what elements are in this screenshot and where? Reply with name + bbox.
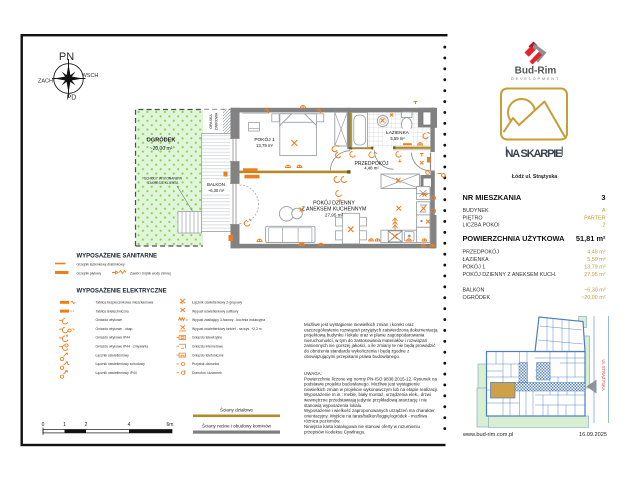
svg-text:5,59 m²: 5,59 m² [390, 136, 405, 141]
svg-text:orientacyjny. Wyjście na taras: orientacyjny. Wyjście na taras/balkon/lo… [304, 413, 427, 418]
svg-text:Domofon i dzwonek: Domofon i dzwonek [192, 371, 222, 375]
svg-text:POKÓJ DZIENNY: POKÓJ DZIENNY [313, 199, 355, 206]
svg-text:LICZBA POKOI: LICZBA POKOI [463, 223, 500, 229]
svg-text:Wypust zasilający 3-fazowy - k: Wypust zasilający 3-fazowy - kuchnia ind… [192, 318, 265, 322]
svg-text:UWAGA:: UWAGA: [304, 371, 322, 376]
svg-text:Gniazdo wtykowe: Gniazdo wtykowe [96, 318, 123, 322]
svg-text:przepisów Kodeksu Cywilnego.: przepisów Kodeksu Cywilnego. [304, 429, 365, 434]
svg-text:16.09.2025: 16.09.2025 [579, 432, 607, 438]
svg-text:Zawór i trójnik wody zimnej: Zawór i trójnik wody zimnej [130, 272, 171, 276]
svg-text:PN: PN [59, 51, 74, 63]
svg-text:Bud-Rim: Bud-Rim [515, 66, 557, 77]
svg-text:Tablica teletechniczna: Tablica teletechniczna [96, 309, 129, 313]
svg-text:Łódź ul. Strążyska: Łódź ul. Strążyska [512, 174, 557, 180]
svg-text:Tablica bezpiecznikowa mieszka: Tablica bezpiecznikowa mieszkaniowa [96, 301, 154, 305]
svg-text:A: A [602, 208, 606, 214]
svg-text:0: 0 [42, 422, 45, 428]
svg-text:Gniazdo wtykowe IP44: Gniazdo wtykowe IP44 [96, 336, 131, 340]
svg-text:UL STRĄŻYSKA: UL STRĄŻYSKA [601, 359, 606, 390]
svg-text:Ściany działowe: Ściany działowe [220, 406, 253, 413]
svg-text:PARTER: PARTER [584, 216, 605, 222]
svg-text:PD: PD [67, 95, 77, 102]
svg-text:NA SKARPIE: NA SKARPIE [506, 148, 563, 160]
svg-text:POKÓJ DZIENNY Z ANEKSEM KUCH.: POKÓJ DZIENNY Z ANEKSEM KUCH. [463, 271, 557, 278]
svg-text:6m: 6m [167, 422, 174, 428]
svg-text:~20,00 m²: ~20,00 m² [150, 146, 173, 152]
svg-text:POKÓJ 1: POKÓJ 1 [463, 264, 486, 271]
svg-text:OPASKA: OPASKA [209, 114, 213, 129]
svg-text:obowiązującymi przepisami praw: obowiązującymi przepisami prawa budowlan… [304, 354, 400, 359]
svg-text:SCHODY WYKONANE W: SCHODY WYKONANE W [144, 177, 183, 181]
svg-text:Wyposażenie i wielkość zapropo: Wyposażenie i wielkość zaproponowanych u… [304, 408, 435, 413]
svg-text:4,48 m²: 4,48 m² [587, 250, 605, 256]
svg-text:Powierzchnie liczone wg normy: Powierzchnie liczone wg normy PN-ISO 983… [304, 376, 437, 381]
svg-text:OGRÓDEK: OGRÓDEK [463, 294, 491, 301]
svg-text:PRZEDPOKÓJ: PRZEDPOKÓJ [463, 249, 500, 256]
svg-text:wewnętrzne przedstawiają jedyn: wewnętrzne przedstawiają jedynie przykła… [304, 398, 428, 403]
svg-text:Wyposażenie m.in.: meble, biał: Wyposażenie m.in.: meble, biały montaż, … [304, 392, 431, 397]
svg-text:Łącznik oświetleniowy: Łącznik oświetleniowy [96, 353, 130, 357]
svg-text:~6,30 m²: ~6,30 m² [208, 188, 225, 193]
svg-text:BUDYNEK: BUDYNEK [463, 208, 489, 214]
svg-text:Ściany nośne i obudowy kominów: Ściany nośne i obudowy kominów [202, 422, 272, 429]
svg-text:Gniazdo telewizyjne: Gniazdo telewizyjne [192, 336, 222, 340]
svg-text:27,95 m²: 27,95 m² [325, 212, 344, 217]
svg-text:projektową budynku i lokalu or: projektową budynku i lokalu oraz w plani… [304, 333, 425, 338]
svg-text:Wypust oświetleniowy sufitowy: Wypust oświetleniowy sufitowy [192, 309, 239, 313]
svg-text:Niniejsza karta katalogowa nie: Niniejsza karta katalogowa nie stanowi o… [304, 424, 420, 429]
svg-text:uszczegółowienie rozwiązań prz: uszczegółowienie rozwiązań przyjętych za… [304, 327, 438, 332]
svg-text:WYPOSAŻENIE SANITARNE: WYPOSAŻENIE SANITARNE [77, 253, 158, 260]
svg-text:~20,00 m²: ~20,00 m² [581, 295, 606, 301]
svg-text:ŁAZIENKA: ŁAZIENKA [386, 130, 410, 135]
svg-text:BALKON: BALKON [463, 288, 485, 294]
svg-text:Gniazdo wtykowe IP44 - zmywark: Gniazdo wtykowe IP44 - zmywarka [96, 345, 149, 349]
svg-text:WYPOSAŻENIE ELEKTRYCZNE: WYPOSAŻENIE ELEKTRYCZNE [77, 288, 167, 295]
svg-text:Gniazdo wtykowe - okap: Gniazdo wtykowe - okap [96, 327, 133, 331]
svg-text:BALKON: BALKON [207, 182, 225, 187]
svg-text:ZAKRESIE KLIENTA: ZAKRESIE KLIENTA [148, 181, 180, 185]
svg-text:4: 4 [128, 422, 131, 428]
svg-text:Gniazdo internetowe: Gniazdo internetowe [192, 345, 223, 349]
svg-text:WSCH: WSCH [82, 73, 99, 79]
svg-text:podstawie projektu budowlanego: podstawie projektu budowlanego. Możliwe … [304, 382, 420, 387]
svg-text:27,95 m²: 27,95 m² [584, 272, 605, 278]
svg-text:Łącznik oświetleniowy 2-grupow: Łącznik oświetleniowy 2-grupowy [192, 301, 242, 305]
svg-text:2: 2 [85, 422, 88, 428]
svg-text:Przycisk dzwonka: Przycisk dzwonka [192, 362, 219, 366]
svg-text:ZACH: ZACH [38, 79, 53, 85]
svg-text:Grzejnik łazienkowy drabinkowy: Grzejnik łazienkowy drabinkowy [77, 263, 125, 267]
svg-text:OGRÓDEK: OGRÓDEK [147, 136, 176, 144]
svg-text:~6,30 m²: ~6,30 m² [584, 288, 606, 294]
svg-text:Łącznik oświetleniowy schodowy: Łącznik oświetleniowy schodowy [96, 362, 146, 366]
svg-text:Możliwe jest wystąpienie niewi: Możliwe jest wystąpienie niewielkich zmi… [304, 322, 414, 327]
svg-text:5,59 m²: 5,59 m² [587, 257, 605, 263]
svg-text:POKÓJ 1: POKÓJ 1 [254, 136, 275, 143]
svg-text:3: 3 [601, 193, 605, 202]
svg-text:Gniazdo telefoniczne: Gniazdo telefoniczne [192, 353, 224, 357]
svg-text:13,79 m²: 13,79 m² [584, 265, 605, 271]
svg-text:zamiennych nie gorszej jakości: zamiennych nie gorszej jakości, o ile zm… [304, 343, 436, 348]
svg-text:4,48 m²: 4,48 m² [364, 166, 379, 171]
svg-text:POWIERZCHNIA UŻYTKOWA: POWIERZCHNIA UŻYTKOWA [463, 234, 566, 243]
svg-text:ŁAZIENKA: ŁAZIENKA [463, 257, 489, 263]
svg-text:niewielkich zmian w projekcie: niewielkich zmian w projekcie wykonawczy… [304, 387, 438, 392]
svg-text:ŻWIROWA: ŻWIROWA [214, 112, 219, 130]
svg-text:Grzejnik płytowy: Grzejnik płytowy [77, 272, 102, 276]
svg-text:Łącznik oświetleniowy IP44: Łącznik oświetleniowy IP44 [96, 371, 137, 375]
svg-text:stanowią wyposażenia lokalu.: stanowią wyposażenia lokalu. [304, 403, 362, 408]
svg-text:2: 2 [603, 223, 606, 229]
svg-text:13,79 m²: 13,79 m² [256, 143, 274, 148]
svg-text:1: 1 [63, 422, 66, 428]
svg-text:51,81 m²: 51,81 m² [576, 234, 606, 243]
svg-text:różnica poziomów.: różnica poziomów. [304, 419, 341, 424]
svg-text:DEVELOPMENT: DEVELOPMENT [511, 76, 560, 81]
svg-text:NR MIESZKANIA: NR MIESZKANIA [463, 193, 522, 202]
svg-text:PIĘTRO: PIĘTRO [463, 216, 483, 222]
svg-text:nieruchomości, w tym do zastos: nieruchomości, w tym do zastosowania mat… [304, 338, 428, 343]
svg-text:www.bud-rim.com.pl: www.bud-rim.com.pl [462, 432, 513, 438]
svg-text:do obniżenia standardu wykończ: do obniżenia standardu wykończenia i będ… [304, 349, 409, 354]
svg-text:Wypust oświetleniowy kinkiet -: Wypust oświetleniowy kinkiet - na wys. +… [192, 327, 262, 331]
